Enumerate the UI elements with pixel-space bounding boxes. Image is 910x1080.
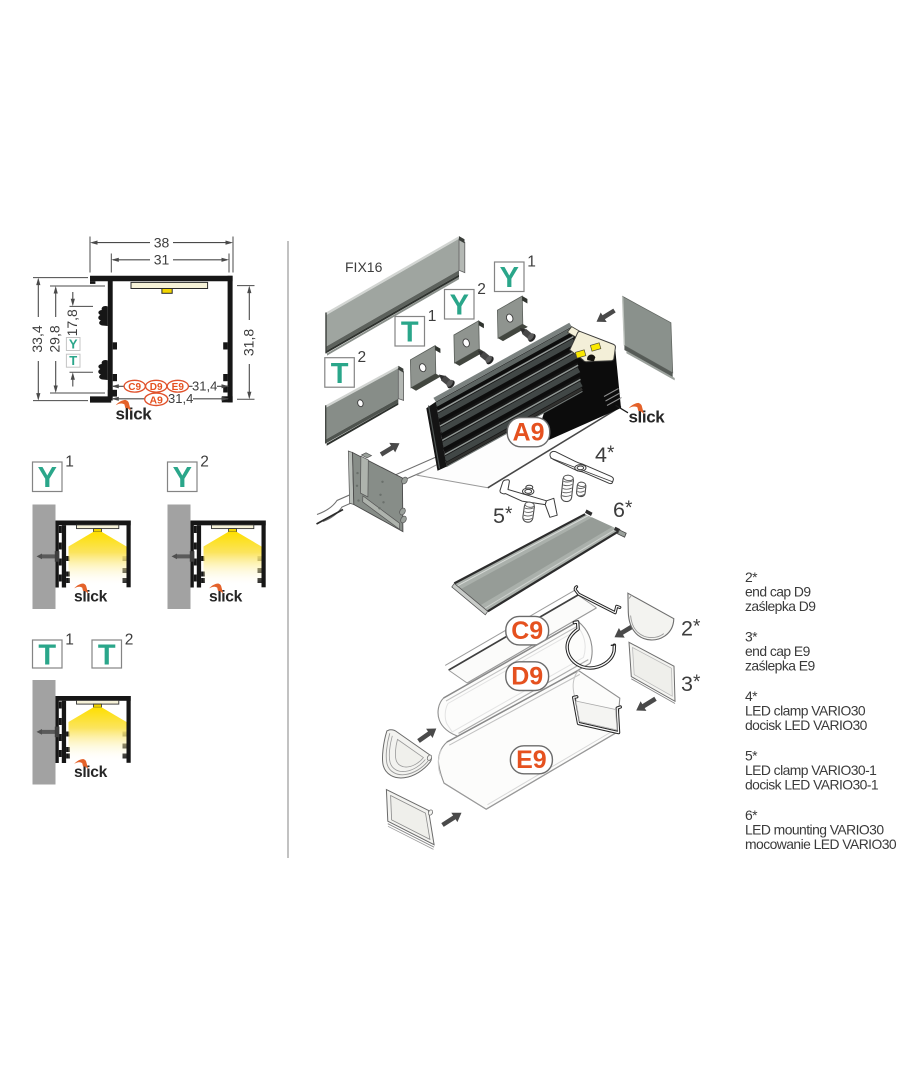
svg-text:A9: A9	[513, 419, 545, 447]
svg-text:A9: A9	[149, 394, 163, 406]
svg-text:T: T	[98, 639, 116, 671]
svg-text:33,4: 33,4	[29, 325, 45, 352]
svg-text:31,4: 31,4	[192, 379, 217, 394]
svg-text:1: 1	[527, 254, 536, 271]
svg-text:docisk LED VARIO30-1: docisk LED VARIO30-1	[745, 777, 879, 793]
svg-text:E9: E9	[172, 382, 185, 393]
svg-text:Y: Y	[450, 290, 469, 322]
svg-text:slick: slick	[629, 408, 666, 427]
svg-text:5*: 5*	[493, 504, 513, 528]
svg-text:17,8: 17,8	[64, 309, 80, 336]
svg-text:Y: Y	[69, 336, 78, 351]
svg-text:6*: 6*	[613, 498, 633, 522]
svg-text:slick: slick	[74, 764, 108, 781]
svg-text:D9: D9	[150, 382, 163, 393]
svg-text:2*: 2*	[681, 617, 701, 641]
svg-text:31,4: 31,4	[168, 391, 193, 406]
svg-text:E9: E9	[516, 746, 547, 774]
svg-text:T: T	[401, 317, 419, 349]
svg-text:1: 1	[65, 454, 74, 471]
svg-text:slick: slick	[74, 589, 108, 606]
svg-text:31,8: 31,8	[240, 329, 256, 356]
svg-text:docisk LED VARIO30: docisk LED VARIO30	[745, 717, 868, 733]
svg-text:2: 2	[357, 349, 366, 366]
svg-text:C9: C9	[511, 617, 543, 645]
svg-text:slick: slick	[116, 405, 153, 424]
svg-text:3*: 3*	[681, 672, 701, 696]
svg-text:zaślepka D9: zaślepka D9	[745, 598, 816, 614]
svg-text:29,8: 29,8	[47, 325, 63, 352]
svg-text:FIX16: FIX16	[345, 259, 383, 275]
svg-text:T: T	[331, 358, 349, 390]
svg-text:mocowanie LED VARIO30: mocowanie LED VARIO30	[745, 836, 897, 852]
svg-text:2: 2	[125, 632, 134, 649]
svg-text:D9: D9	[511, 663, 543, 691]
svg-text:1: 1	[65, 632, 74, 649]
svg-text:2: 2	[200, 454, 209, 471]
svg-text:Y: Y	[500, 262, 519, 294]
svg-text:T: T	[38, 639, 56, 671]
svg-text:zaślepka E9: zaślepka E9	[745, 658, 815, 674]
svg-text:Y: Y	[38, 462, 57, 494]
svg-text:4*: 4*	[595, 443, 615, 467]
svg-text:31: 31	[154, 252, 170, 268]
svg-text:1: 1	[428, 308, 437, 325]
svg-text:T: T	[69, 353, 77, 368]
svg-text:2: 2	[477, 281, 486, 298]
svg-text:Y: Y	[173, 462, 192, 494]
svg-text:C9: C9	[128, 382, 141, 393]
svg-text:38: 38	[154, 234, 170, 250]
svg-text:slick: slick	[209, 589, 243, 606]
